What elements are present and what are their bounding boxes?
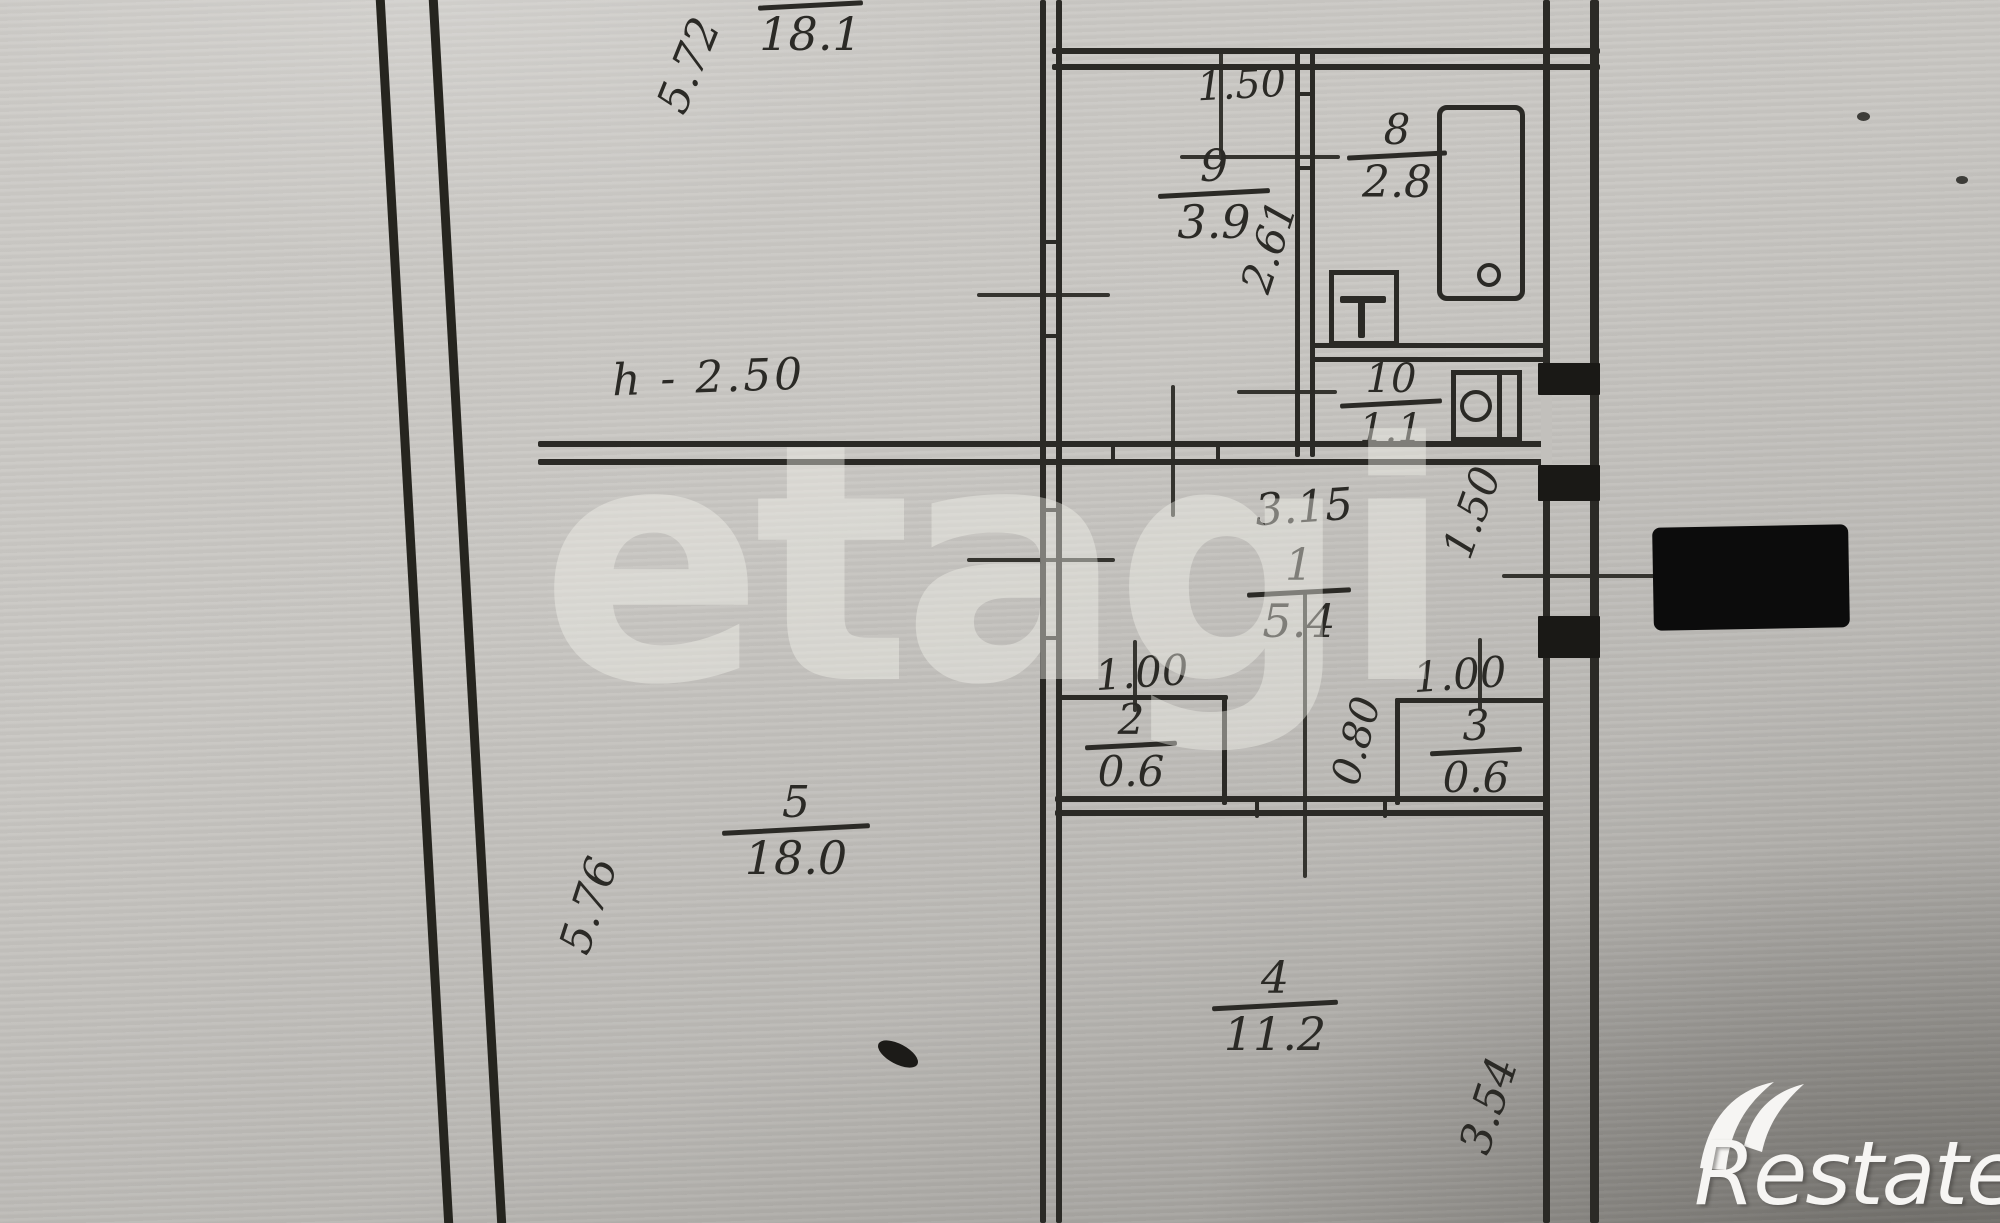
restate-logo-text: Restate (1694, 1122, 2000, 1223)
room-label-1: 1 5.4 (1247, 545, 1351, 644)
room-label-4: 4 11.2 (1212, 958, 1338, 1057)
wall-tick (1295, 166, 1315, 170)
wall-tick (1216, 443, 1220, 465)
dimension-line (1237, 390, 1337, 394)
wall-center-vertical-a (1040, 0, 1046, 1223)
dimension-closet3-width: 1.00 (1411, 647, 1508, 702)
ink-blob (874, 1035, 922, 1073)
wall-kitchen-bath-b (1310, 52, 1315, 457)
wall-tick (1111, 443, 1115, 465)
room-label-3: 3 0.6 (1430, 706, 1522, 799)
restate-logo: Restate (1688, 1088, 2000, 1223)
dimension-hall-width: 3.15 (1253, 479, 1354, 537)
room-area: 0.6 (1085, 751, 1177, 793)
paper-speck (1857, 112, 1870, 121)
sink-divider (1497, 370, 1502, 442)
balcony-door-jamb (1538, 465, 1600, 501)
room-label-6: 6 18.1 (758, 0, 863, 57)
wall-right-outer-outer (1590, 0, 1599, 1223)
room-number: 9 (1158, 146, 1270, 188)
window-jamb (1538, 616, 1600, 658)
room-number: 3 (1430, 706, 1522, 746)
wall-closet-bottom-b (1055, 810, 1548, 816)
redaction-box (1652, 524, 1850, 630)
wall-tick (1255, 796, 1259, 818)
bathtub-drain-icon (1477, 263, 1501, 287)
wall-tick (1040, 240, 1062, 244)
dimension-line (1171, 385, 1175, 517)
dimension-left-top-wall: 5.72 (647, 11, 731, 121)
wall-kitchen-bath-a (1295, 52, 1300, 457)
dimension-balcony-door: 1.50 (1433, 460, 1511, 565)
dimension-left-bottom-wall: 5.76 (550, 851, 629, 960)
wall-tick (1040, 334, 1062, 338)
room-number: 5 (722, 782, 870, 824)
room-area: 18.1 (758, 11, 863, 57)
balcony-door-jamb (1538, 363, 1600, 395)
redaction-leader-line (1502, 574, 1660, 578)
wall-center-vertical-b (1056, 0, 1062, 1223)
toilet-bowl (1358, 296, 1365, 338)
dimension-passage-width: 0.80 (1323, 692, 1390, 790)
room-area: 2.8 (1347, 161, 1447, 205)
room-label-10: 10 1.1 (1340, 360, 1442, 449)
room-label-5: 5 18.0 (722, 782, 870, 881)
dimension-kitchen-width: 1.50 (1196, 60, 1287, 111)
room-area: 11.2 (1212, 1011, 1338, 1057)
wall-closet3-left (1395, 698, 1400, 805)
wall-closet2-right (1222, 695, 1227, 805)
wall-top-b (1052, 64, 1600, 70)
floor-plan-photo: 6 18.1 9 3.9 8 2.8 10 1.1 1 5.4 2 0.6 3 … (0, 0, 2000, 1223)
dimension-room4-depth: 3.54 (1450, 1051, 1529, 1160)
room-area: 5.4 (1247, 598, 1351, 644)
balcony-door-opening (1541, 393, 1552, 467)
room-number: 4 (1212, 958, 1338, 1000)
wall-tick (1040, 508, 1062, 512)
room-number: 8 (1347, 110, 1447, 150)
wall-tick (1295, 92, 1315, 96)
room-area: 18.0 (722, 835, 870, 881)
room-area: 0.6 (1430, 757, 1522, 799)
room-area: 1.1 (1340, 409, 1442, 449)
wall-tick (1383, 796, 1387, 818)
dimension-closet2-width: 1.00 (1093, 645, 1190, 700)
ceiling-height-label: h - 2.50 (611, 349, 806, 407)
wall-tick (1040, 636, 1062, 640)
paper-speck (1956, 176, 1968, 184)
room-label-8: 8 2.8 (1347, 110, 1447, 205)
room-number: 2 (1085, 700, 1177, 740)
room-number: 10 (1340, 360, 1442, 398)
sink-basin-icon (1460, 390, 1492, 422)
wall-top-a (1052, 48, 1600, 54)
room-number: 1 (1247, 545, 1351, 587)
wall-right-outer-inner (1543, 0, 1550, 1223)
room-label-2: 2 0.6 (1085, 700, 1177, 793)
wall-height-partition-b (538, 459, 1548, 465)
